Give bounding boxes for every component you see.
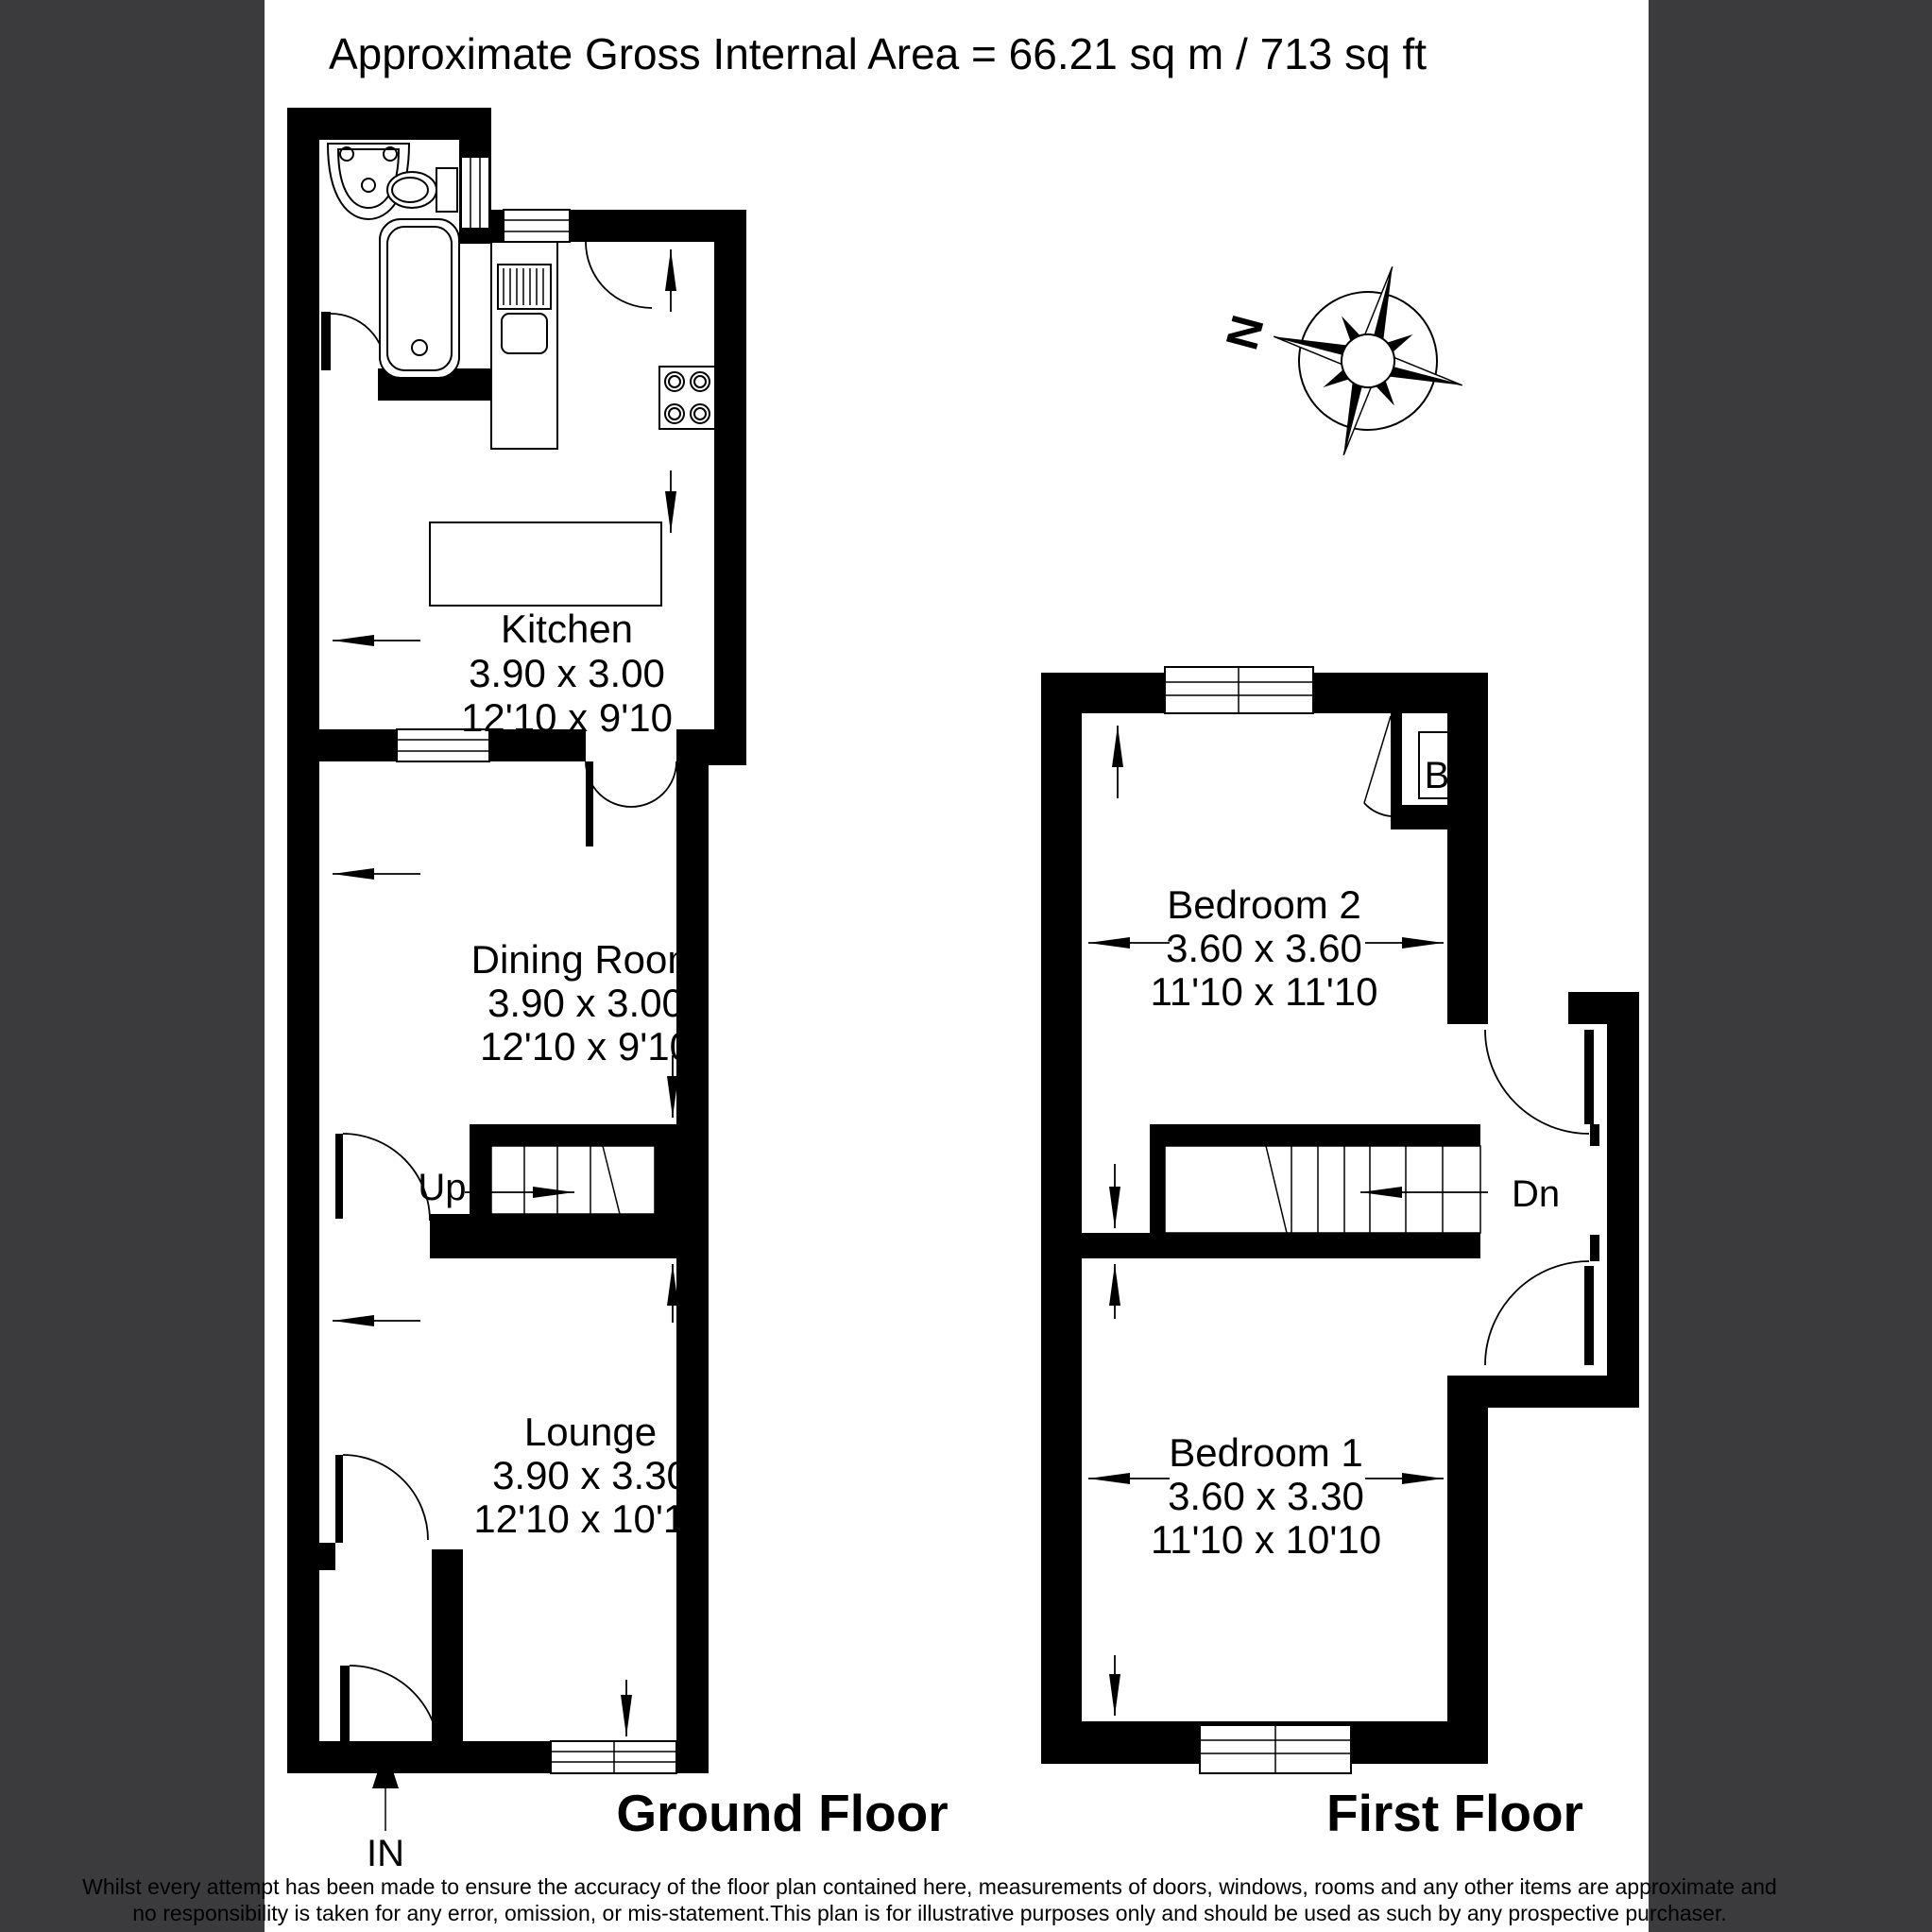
right-border-band <box>1649 0 1932 1932</box>
dining-room-size-imperial: 12'10 x 9'10 <box>480 1024 692 1069</box>
toilet <box>387 168 457 212</box>
kitchen-window <box>504 210 570 242</box>
bedroom2-size-metric: 3.60 x 3.60 <box>1166 926 1362 970</box>
stove <box>659 367 715 429</box>
bedroom1-size-metric: 3.60 x 3.30 <box>1168 1474 1364 1518</box>
lounge-size-metric: 3.90 x 3.30 <box>492 1453 689 1497</box>
kitchen-counter-bottom <box>430 522 661 606</box>
dining-room-name: Dining Room <box>471 937 701 982</box>
bedroom1-window <box>1200 1725 1351 1773</box>
kitchen-name: Kitchen <box>501 607 633 651</box>
kitchen-size-imperial: 12'10 x 9'10 <box>461 695 673 740</box>
first-floor-label: First Floor <box>1326 1784 1583 1842</box>
stairs-dn-label: Dn <box>1512 1173 1560 1215</box>
boiler-label: B <box>1425 755 1450 796</box>
ground-floor-label: Ground Floor <box>616 1784 948 1842</box>
bedroom1-size-imperial: 11'10 x 10'10 <box>1151 1517 1381 1562</box>
bedroom1-name: Bedroom 1 <box>1169 1430 1362 1475</box>
disclaimer-line1: Whilst every attempt has been made to en… <box>82 1874 1777 1899</box>
bedroom2-size-imperial: 11'10 x 11'10 <box>1150 969 1377 1014</box>
left-border-band <box>0 0 265 1932</box>
lounge-size-imperial: 12'10 x 10'10 <box>473 1496 707 1541</box>
entrance-label: IN <box>367 1833 404 1874</box>
bedroom2-name: Bedroom 2 <box>1167 882 1360 927</box>
floorplan-canvas: Approximate Gross Internal Area = 66.21 … <box>0 0 1932 1932</box>
bathroom-window <box>461 157 489 229</box>
dining-room-size-metric: 3.90 x 3.00 <box>487 981 684 1025</box>
lounge-name: Lounge <box>524 1410 657 1454</box>
stairs-up-label: Up <box>418 1167 466 1208</box>
page-title: Approximate Gross Internal Area = 66.21 … <box>329 29 1427 78</box>
disclaimer-line2: no responsibility is taken for any error… <box>132 1901 1727 1925</box>
bedroom2-window <box>1165 667 1313 713</box>
bathtub <box>380 219 459 378</box>
kitchen-size-metric: 3.90 x 3.00 <box>469 651 665 695</box>
lounge-window <box>551 1741 676 1773</box>
